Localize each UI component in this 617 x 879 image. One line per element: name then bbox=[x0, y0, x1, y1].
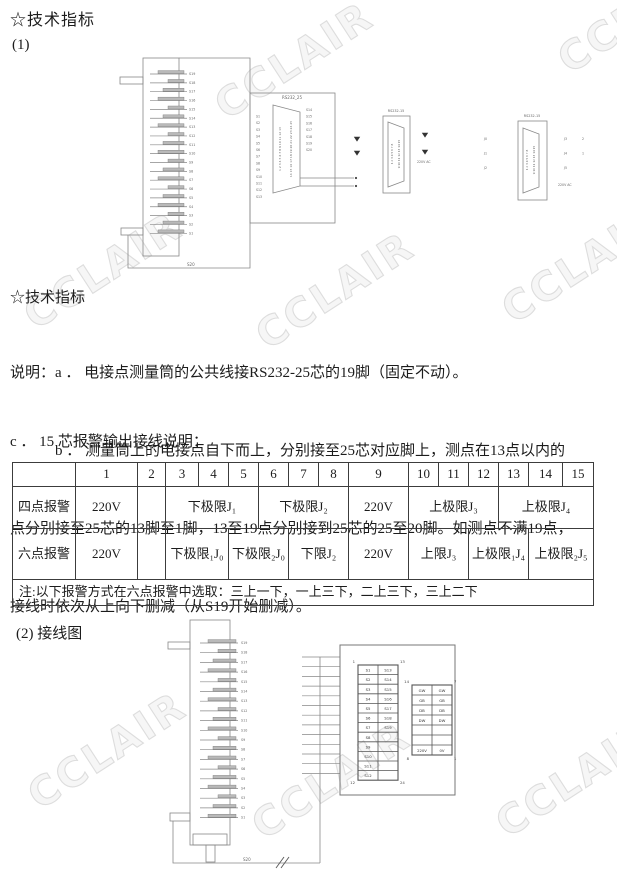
down-arrow-marker bbox=[354, 151, 360, 156]
header-cell: 9 bbox=[349, 463, 409, 487]
pin-label: S4 bbox=[241, 787, 245, 791]
pin-label: S3 bbox=[241, 796, 245, 800]
contact-bar bbox=[208, 698, 236, 701]
table-cell bbox=[138, 529, 166, 580]
contact-bar bbox=[158, 150, 184, 153]
wire-end-dot bbox=[355, 185, 357, 187]
pin-label: S11 bbox=[256, 182, 262, 186]
db15-pin-numbers: 9 10 11 12 13 14 15 bbox=[532, 146, 536, 175]
pin-label: S10 bbox=[256, 175, 262, 179]
pin-label: S11 bbox=[189, 143, 195, 147]
cylinder-body bbox=[190, 620, 230, 845]
terminal-label: S7 bbox=[366, 725, 371, 730]
terminal-label: S5 bbox=[366, 706, 371, 711]
pin-label: S18 bbox=[306, 135, 312, 139]
contact-bar bbox=[208, 669, 236, 672]
contact-bar bbox=[218, 766, 236, 769]
pin-label: S18 bbox=[189, 81, 195, 85]
pin-label: S5 bbox=[256, 141, 260, 145]
contact-bar bbox=[168, 159, 184, 162]
db15-title: RS232-15 bbox=[524, 114, 541, 118]
terminal-label: DB bbox=[419, 708, 425, 713]
pin-label-common: S20 bbox=[243, 857, 251, 862]
wire-end-dot bbox=[355, 177, 357, 179]
contact-bar bbox=[213, 746, 236, 749]
pin-label: S16 bbox=[306, 121, 312, 125]
contact-bar bbox=[218, 678, 236, 681]
contact-bar bbox=[213, 717, 236, 720]
table-cell: 上极限₁J₄ bbox=[469, 529, 529, 580]
contact-bar bbox=[213, 775, 236, 778]
alarm-wiring-table: 1 2 3 4 5 6 7 8 9 10 11 12 13 14 15 四点报警… bbox=[12, 462, 594, 606]
supply-label: 220V AC bbox=[417, 160, 431, 164]
table-cell: 220V bbox=[349, 529, 409, 580]
header-cell: 5 bbox=[229, 463, 259, 487]
section-2-title: ☆技术指标 bbox=[10, 286, 85, 307]
pin-label: S19 bbox=[189, 72, 195, 76]
terminal-label: GW bbox=[439, 688, 446, 693]
contact-bar bbox=[213, 688, 236, 691]
terminal-label: S15 bbox=[384, 687, 392, 692]
terminal-label: S12 bbox=[364, 773, 372, 778]
terminal-label: S2 bbox=[366, 677, 371, 682]
pin-label: S15 bbox=[189, 107, 195, 111]
row-label: 六点报警 bbox=[13, 529, 76, 580]
pin-label: S14 bbox=[241, 690, 247, 694]
pin-label: S13 bbox=[256, 195, 262, 199]
pin-label: S5 bbox=[189, 196, 193, 200]
pin-label: S12 bbox=[256, 188, 262, 192]
contact-bar bbox=[218, 795, 236, 798]
terminal-label: 220V bbox=[417, 748, 427, 753]
page-title: ☆技术指标 bbox=[10, 6, 95, 30]
header-cell: 3 bbox=[166, 463, 199, 487]
table-cell bbox=[138, 487, 166, 529]
contact-bar bbox=[158, 97, 184, 100]
terminal-label: S13 bbox=[384, 668, 392, 673]
header-cell: 12 bbox=[469, 463, 499, 487]
table-cell: 220V bbox=[349, 487, 409, 529]
header-cell: 13 bbox=[499, 463, 529, 487]
pin-label: S1 bbox=[256, 115, 260, 119]
terminal-label: S1 bbox=[366, 668, 371, 673]
relay-label: J2 bbox=[483, 166, 487, 170]
pin-label: S5 bbox=[241, 777, 245, 781]
pin-label: S7 bbox=[256, 155, 260, 159]
down-arrow-marker bbox=[354, 137, 360, 142]
contact-bar bbox=[168, 79, 184, 82]
terminal-label: DB bbox=[439, 708, 445, 713]
pin-label: S16 bbox=[241, 670, 247, 674]
db15-pin-numbers: 9 10 11 12 13 14 15 bbox=[397, 140, 401, 169]
corner-number: 7 bbox=[454, 679, 457, 684]
pin-label: S13 bbox=[189, 125, 195, 129]
corner-number: 12 bbox=[350, 780, 355, 785]
pin-label: S2 bbox=[189, 222, 193, 226]
table-header-row: 1 2 3 4 5 6 7 8 9 10 11 12 13 14 15 bbox=[13, 463, 594, 487]
contact-bar bbox=[208, 756, 236, 759]
pin-label: S3 bbox=[256, 128, 260, 132]
header-cell bbox=[13, 463, 76, 487]
pin-label: S11 bbox=[241, 719, 247, 723]
terminal-label: S10 bbox=[364, 754, 372, 759]
pin-label: S8 bbox=[241, 748, 245, 752]
pin-label: S9 bbox=[189, 161, 193, 165]
relay-label: J5 bbox=[563, 166, 567, 170]
pin-label: S17 bbox=[241, 660, 247, 664]
contact-bar bbox=[158, 71, 184, 74]
db15-pin-numbers: 1 2 3 4 5 6 7 8 bbox=[525, 150, 529, 171]
db15-pin-numbers: 1 2 3 4 5 6 7 8 bbox=[390, 144, 394, 165]
cable-break-mark bbox=[276, 857, 284, 868]
contact-bar bbox=[208, 814, 236, 817]
contact-bar bbox=[163, 168, 184, 171]
pin-label: S19 bbox=[241, 641, 247, 645]
pin-label: S19 bbox=[306, 142, 312, 146]
pin-label: S12 bbox=[189, 134, 195, 138]
header-cell: 1 bbox=[76, 463, 138, 487]
pin-label: S6 bbox=[241, 767, 245, 771]
cylinder-stem bbox=[206, 845, 215, 862]
six-point-alarm-row: 六点报警 220V 下极限₁J₀ 下极限₂J₀ 下限J₂ 220V 上限J₃ 上… bbox=[13, 529, 594, 580]
contact-bar bbox=[208, 785, 236, 788]
pin-connection-diagram: S20S19S18S17S16S15S14S13S12S11S10S9S8S7S… bbox=[0, 50, 617, 280]
pin-label: S1 bbox=[241, 816, 245, 820]
header-cell: 8 bbox=[319, 463, 349, 487]
pin-label: S18 bbox=[241, 651, 247, 655]
terminal-label: GB bbox=[419, 698, 425, 703]
terminal-label: S16 bbox=[384, 696, 392, 701]
note-line: 说明：a ． 电接点测量筒的公共线接RS232-25芯的19脚（固定不动）。 bbox=[10, 360, 610, 386]
terminal-label: DW bbox=[419, 718, 426, 723]
row-label: 四点报警 bbox=[13, 487, 76, 529]
pin-label: S20 bbox=[306, 148, 312, 152]
cylinder-stub-bottom bbox=[170, 813, 190, 821]
terminal-label: S19 bbox=[384, 725, 392, 730]
terminal-label: S17 bbox=[384, 706, 392, 711]
contact-bar bbox=[158, 177, 184, 180]
terminal-label: S3 bbox=[366, 687, 371, 692]
table-cell: 下极限J₁ bbox=[166, 487, 259, 529]
down-arrow-marker bbox=[422, 133, 428, 138]
contact-bar bbox=[158, 203, 184, 206]
contact-bar bbox=[163, 141, 184, 144]
header-cell: 15 bbox=[563, 463, 594, 487]
corner-number: 24 bbox=[400, 780, 405, 785]
db25-title: RS232_25 bbox=[282, 95, 302, 100]
pin-label: S7 bbox=[189, 178, 193, 182]
header-cell: 11 bbox=[439, 463, 469, 487]
pin-label: S10 bbox=[189, 152, 195, 156]
pin-label: S15 bbox=[306, 115, 312, 119]
terminal-label: S11 bbox=[364, 764, 372, 769]
pin-label: S14 bbox=[189, 116, 195, 120]
contact-bar bbox=[168, 133, 184, 136]
pin-label-common: S20 bbox=[187, 262, 195, 267]
cable-break-mark bbox=[281, 857, 289, 868]
pin-label: S16 bbox=[189, 99, 195, 103]
cylinder-stub-top bbox=[120, 77, 143, 84]
cylinder-base bbox=[193, 834, 227, 845]
table-cell: 220V bbox=[76, 529, 138, 580]
contact-bar bbox=[158, 230, 184, 233]
pin-label: S6 bbox=[256, 148, 260, 152]
terminal-label: S9 bbox=[366, 744, 371, 749]
table-cell: 下极限₂J₀ bbox=[229, 529, 289, 580]
corner-number: 8 bbox=[407, 756, 410, 761]
table-cell: 下极限₁J₀ bbox=[166, 529, 229, 580]
pin-label: S10 bbox=[241, 728, 247, 732]
pin-label: S17 bbox=[306, 128, 312, 132]
contact-bar bbox=[213, 805, 236, 808]
pin-label: S8 bbox=[256, 161, 260, 165]
contact-bar bbox=[208, 640, 236, 643]
db25-pin-numbers: 1 2 3 4 5 6 7 8 9 10 11 12 13 bbox=[278, 127, 282, 171]
terminal-label: S8 bbox=[366, 735, 371, 740]
header-cell: 2 bbox=[138, 463, 166, 487]
pin-label: S13 bbox=[241, 699, 247, 703]
relay-label: J3 bbox=[563, 137, 567, 141]
contact-bar bbox=[168, 106, 184, 109]
contact-bar bbox=[213, 659, 236, 662]
db15-title: RS232-15 bbox=[388, 109, 405, 113]
pin-label: S7 bbox=[241, 757, 245, 761]
pin-label: S8 bbox=[189, 169, 193, 173]
contact-bar bbox=[218, 737, 236, 740]
cylinder-stub-bottom bbox=[121, 228, 143, 235]
corner-number: 1 bbox=[353, 659, 356, 664]
cylinder-stub-top bbox=[168, 642, 190, 649]
table-cell: 下极限J₂ bbox=[259, 487, 349, 529]
down-arrow-marker bbox=[422, 150, 428, 155]
terminal-label: GB bbox=[439, 698, 445, 703]
relay-label: J1 bbox=[483, 152, 487, 156]
corner-number: 1 bbox=[454, 756, 457, 761]
table-cell: 上极限₂J₅ bbox=[529, 529, 594, 580]
pin-label: S4 bbox=[256, 135, 260, 139]
pin-label: S1 bbox=[189, 231, 193, 235]
cylinder-body bbox=[143, 58, 179, 256]
pin-label: S14 bbox=[306, 108, 312, 112]
table-cell: 下限J₂ bbox=[289, 529, 349, 580]
pin-label: S9 bbox=[241, 738, 245, 742]
header-cell: 7 bbox=[289, 463, 319, 487]
pin-label: S4 bbox=[189, 205, 193, 209]
contact-bar bbox=[163, 221, 184, 224]
corner-number: 13 bbox=[400, 659, 405, 664]
contact-bar bbox=[208, 727, 236, 730]
wiring-diagram: S19S18S17S16S15S14S13S12S11S10S9S8S7S6S5… bbox=[0, 615, 617, 879]
pin-label: S17 bbox=[189, 90, 195, 94]
pin-label: S6 bbox=[189, 187, 193, 191]
terminal-label: GW bbox=[419, 688, 426, 693]
header-cell: 10 bbox=[409, 463, 439, 487]
header-cell: 14 bbox=[529, 463, 563, 487]
terminal-label: DW bbox=[439, 718, 446, 723]
db25-pin-numbers: 14 15 16 17 18 19 20 21 22 23 24 25 bbox=[289, 121, 293, 177]
supply-label: 220V AC bbox=[558, 183, 572, 187]
pin-label: S12 bbox=[241, 709, 247, 713]
contact-bar bbox=[163, 88, 184, 91]
four-point-alarm-row: 四点报警 220V 下极限J₁ 下极限J₂ 220V 上极限J₃ 上极限J₄ bbox=[13, 487, 594, 529]
contact-bar bbox=[218, 708, 236, 711]
table-note-row: 注:以下报警方式在六点报警中选取：三上一下，一上三下，二上三下，三上二下 bbox=[13, 580, 594, 606]
relay-label: J0 bbox=[483, 137, 487, 141]
contact-bar bbox=[218, 649, 236, 652]
terminal-label: S14 bbox=[384, 677, 392, 682]
terminal-label: S4 bbox=[366, 696, 371, 701]
pin-label: S9 bbox=[256, 168, 260, 172]
contact-bar bbox=[163, 195, 184, 198]
contact-bar bbox=[158, 124, 184, 127]
corner-number: 14 bbox=[404, 679, 409, 684]
pin-number: 1 bbox=[582, 152, 584, 156]
pin-label: S15 bbox=[241, 680, 247, 684]
terminal-label: 0V bbox=[439, 748, 444, 753]
contact-bar bbox=[168, 212, 184, 215]
pin-label: S2 bbox=[256, 121, 260, 125]
contact-bar bbox=[168, 186, 184, 189]
header-cell: 6 bbox=[259, 463, 289, 487]
contact-bar bbox=[163, 115, 184, 118]
table-cell: 220V bbox=[76, 487, 138, 529]
terminal-label: S6 bbox=[366, 716, 371, 721]
table-cell: 上极限J₃ bbox=[409, 487, 499, 529]
pin-number: 2 bbox=[582, 137, 584, 141]
pin-label: S3 bbox=[189, 214, 193, 218]
terminal-label: S18 bbox=[384, 716, 392, 721]
relay-label: J4 bbox=[563, 152, 567, 156]
header-cell: 4 bbox=[199, 463, 229, 487]
table-note: 注:以下报警方式在六点报警中选取：三上一下，一上三下，二上三下，三上二下 bbox=[13, 580, 594, 606]
table-cell: 上限J₃ bbox=[409, 529, 469, 580]
section-c-title: c ． 15 芯报警输出接线说明： bbox=[10, 430, 208, 451]
pin-label: S2 bbox=[241, 806, 245, 810]
table-cell: 上极限J₄ bbox=[499, 487, 594, 529]
